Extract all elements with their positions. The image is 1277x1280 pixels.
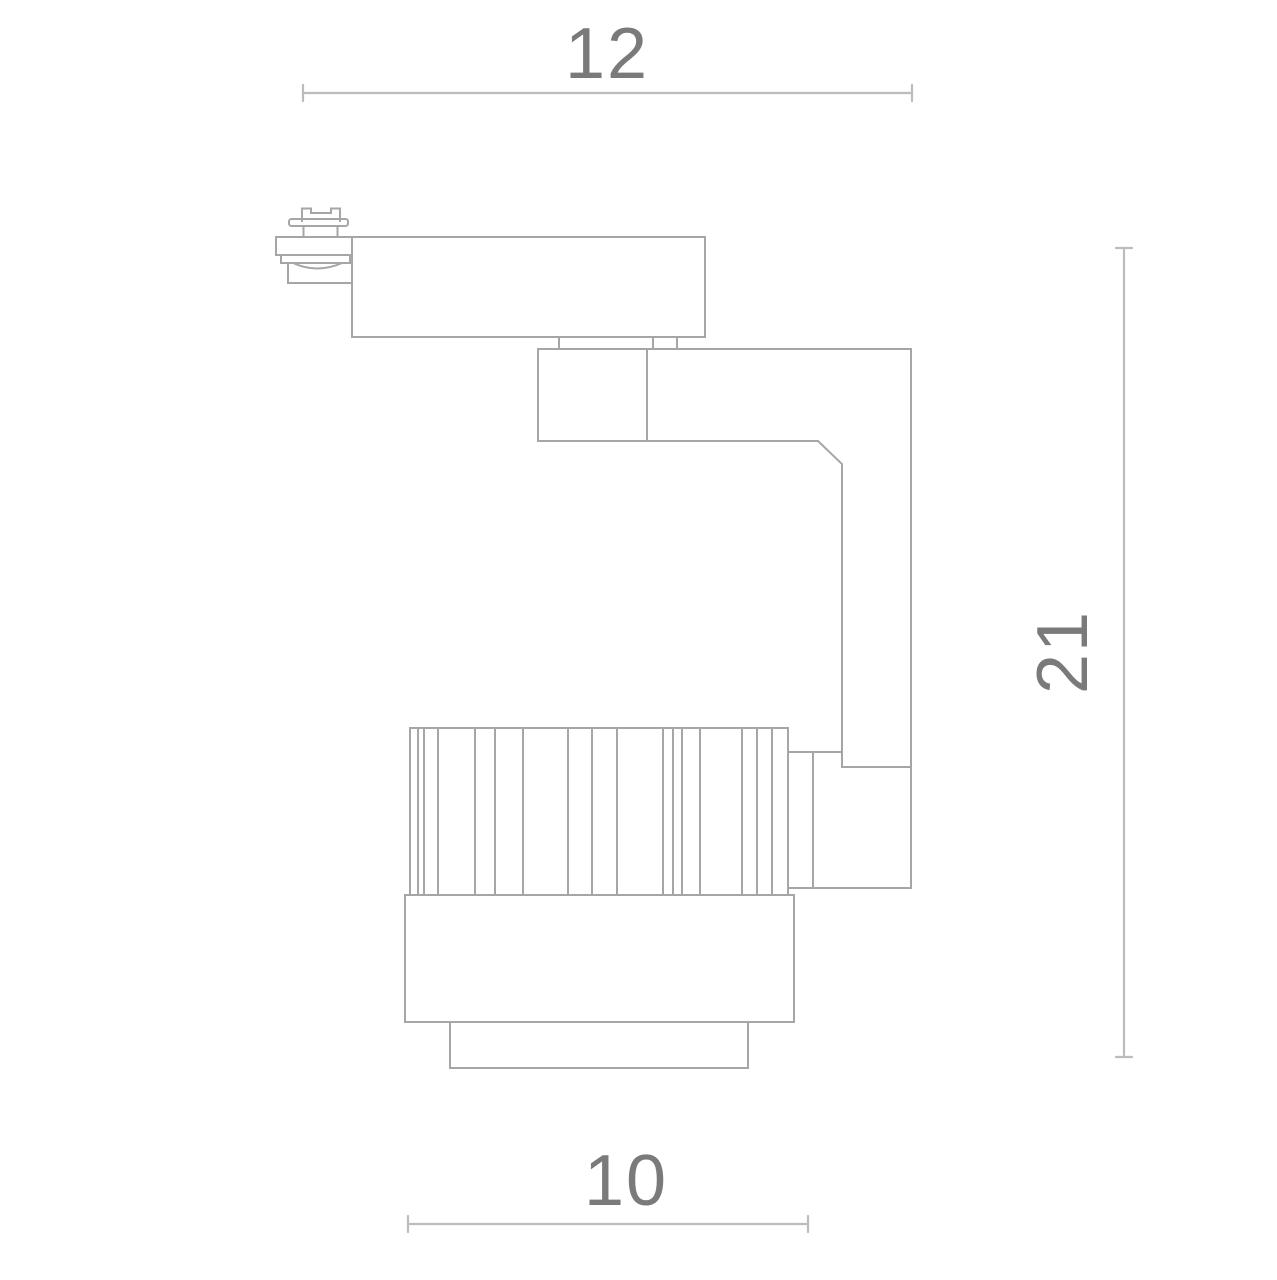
fixture-outline [276, 209, 911, 1069]
dimension-label-top: 12 [565, 14, 649, 94]
adapter-upper-body [276, 237, 352, 255]
front-bezel [450, 1022, 748, 1068]
drawing-canvas: 12 21 10 [0, 0, 1277, 1280]
arm-inner-edge [647, 441, 911, 767]
hinge-block [538, 349, 647, 441]
track-light-technical-drawing: 12 21 10 [0, 0, 1277, 1280]
dimension-label-bottom: 10 [584, 1141, 668, 1221]
dimension-label-right: 21 [1023, 610, 1103, 694]
dimension-width-top: 12 [303, 14, 912, 101]
dimension-height-right: 21 [1023, 248, 1132, 1057]
adapter-mid-plate [281, 255, 350, 263]
track-mount-body [352, 237, 705, 337]
lamp-body [405, 895, 794, 1022]
adapter-lower-block [288, 263, 352, 283]
dimension-width-bottom: 10 [408, 1141, 808, 1232]
